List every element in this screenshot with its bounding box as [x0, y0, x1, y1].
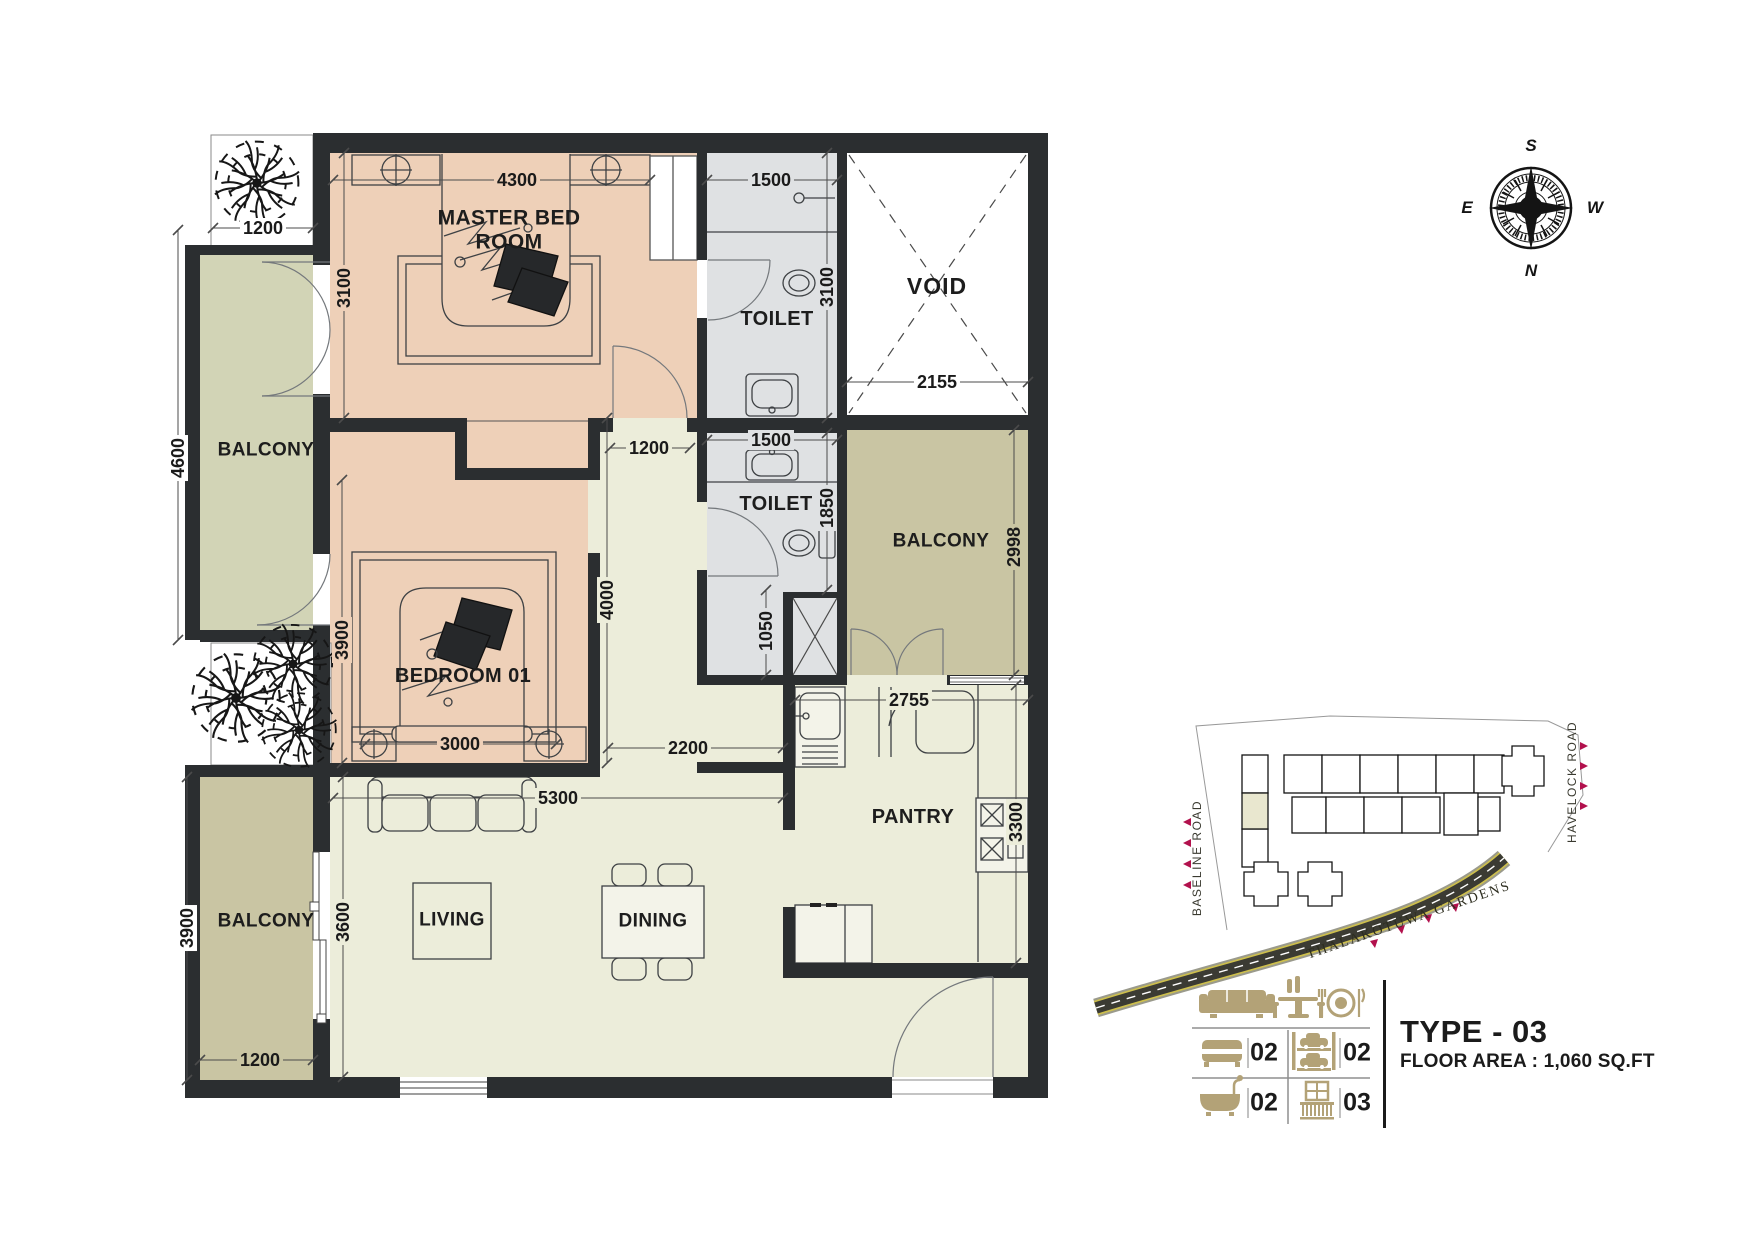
unit-floor-area: FLOOR AREA : 1,060 SQ.FT	[1400, 1051, 1655, 1073]
legend-count-beds: 02	[1250, 1039, 1278, 1068]
car-parking-icon	[1292, 1032, 1336, 1071]
room-label-toilet-1: TOILET	[712, 308, 842, 330]
room-label-bedroom-01: BEDROOM 01	[378, 665, 548, 687]
legend-count-balconies: 03	[1343, 1089, 1371, 1118]
bar-table-icon	[1271, 976, 1325, 1018]
dimension-label: 4300	[494, 170, 540, 190]
dimension-label: 2200	[665, 738, 711, 758]
dimension-label: 3900	[177, 905, 197, 951]
floor-plan-page: MASTER BED ROOM TOILET VOID TOILET BALCO…	[0, 0, 1755, 1242]
dimension-label: 1200	[240, 218, 286, 238]
compass-west-label: W	[1587, 198, 1603, 218]
dimension-label: 3600	[333, 899, 353, 945]
site-highlighted-unit	[1242, 793, 1268, 829]
legend-count-parking: 02	[1343, 1039, 1371, 1068]
room-label-balcony-lower-left: BALCONY	[201, 910, 331, 931]
dimension-label: 3300	[1006, 799, 1026, 845]
dimension-label: 3100	[817, 264, 837, 310]
legend-divider	[1383, 980, 1386, 1128]
room-label-living: LIVING	[397, 909, 507, 930]
bathtub-icon	[1200, 1075, 1243, 1116]
compass-east-label: E	[1461, 198, 1472, 218]
room-label-balcony-upper-left: BALCONY	[201, 439, 331, 460]
compass-north-label: N	[1525, 261, 1537, 281]
compass-south-label: S	[1525, 136, 1536, 156]
legend-count-bathrooms: 02	[1250, 1089, 1278, 1118]
unit-type-title: TYPE - 03	[1400, 1014, 1548, 1050]
compass-icon	[1489, 166, 1573, 250]
bed-icon	[1202, 1040, 1242, 1067]
room-label-balcony-right: BALCONY	[876, 530, 1006, 551]
dimension-label: 2755	[886, 690, 932, 710]
dimension-label: 4600	[168, 435, 188, 481]
road-label-havelock: HAVELOCK ROAD	[1565, 721, 1579, 843]
dimension-label: 5300	[535, 788, 581, 808]
dimension-label: 1500	[748, 170, 794, 190]
dimension-label: 1200	[626, 438, 672, 458]
dimension-label: 3900	[332, 617, 352, 663]
balcony-icon	[1300, 1082, 1334, 1120]
dining-plate-icon	[1319, 989, 1364, 1017]
dimension-label: 1850	[817, 485, 837, 531]
room-label-void: VOID	[882, 274, 992, 300]
dimension-label: 2155	[914, 372, 960, 392]
dimension-label: 3000	[437, 734, 483, 754]
site-plan	[1096, 716, 1588, 1008]
dimension-label: 2998	[1004, 524, 1024, 570]
dimension-label: 1050	[756, 608, 776, 654]
room-label-dining: DINING	[598, 910, 708, 931]
road-label-baseline: BASELINE ROAD	[1190, 800, 1204, 916]
sofa-icon	[1199, 990, 1275, 1018]
room-label-master-bedroom: MASTER BED ROOM	[429, 206, 589, 253]
dimension-label: 1500	[748, 430, 794, 450]
dimension-label: 1200	[237, 1050, 283, 1070]
room-label-pantry: PANTRY	[853, 806, 973, 828]
dimension-label: 4000	[597, 577, 617, 623]
dimension-label: 3100	[334, 265, 354, 311]
